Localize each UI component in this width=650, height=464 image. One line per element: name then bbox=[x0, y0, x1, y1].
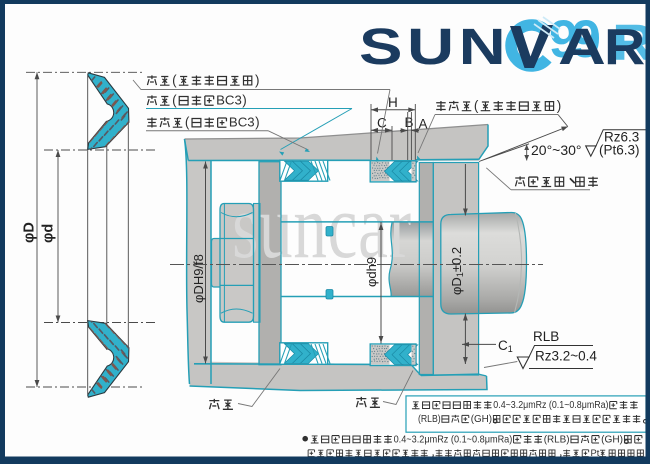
svg-text:φD1±0.2: φD1±0.2 bbox=[449, 247, 465, 295]
svg-text:A: A bbox=[419, 117, 428, 132]
svg-text:0.4~3.2μmRz (0.1~0.8μmRa): 0.4~3.2μmRz (0.1~0.8μmRa) bbox=[394, 434, 513, 445]
svg-text:(Pt6.3): (Pt6.3) bbox=[599, 143, 640, 158]
svg-text:0.4~3.2μmRz (0.1~0.8μmRa): 0.4~3.2μmRz (0.1~0.8μmRa) bbox=[493, 400, 608, 411]
svg-text:(: ( bbox=[185, 114, 190, 129]
svg-text:H: H bbox=[388, 95, 398, 110]
svg-text:(: ( bbox=[172, 92, 177, 107]
svg-text:): ) bbox=[242, 92, 247, 107]
svg-text:BC3: BC3 bbox=[216, 92, 242, 107]
svg-text:(GH): (GH) bbox=[601, 434, 623, 445]
svg-text:R: R bbox=[604, 19, 645, 76]
svg-text:φDH9/f8: φDH9/f8 bbox=[191, 254, 206, 303]
svg-text:Pt: Pt bbox=[591, 447, 600, 458]
svg-text:BC3: BC3 bbox=[229, 114, 255, 129]
svg-text:(RLB): (RLB) bbox=[418, 414, 441, 425]
svg-text:): ) bbox=[557, 98, 562, 113]
svg-text:B: B bbox=[405, 115, 414, 130]
svg-text:Rz3.2~0.4: Rz3.2~0.4 bbox=[535, 349, 597, 364]
svg-text:(: ( bbox=[172, 72, 177, 87]
svg-text:φdh9: φdh9 bbox=[364, 257, 379, 287]
svg-text:φD: φD bbox=[22, 222, 38, 243]
svg-text:A: A bbox=[558, 17, 606, 75]
svg-text:SUN: SUN bbox=[359, 19, 510, 76]
svg-text:): ) bbox=[255, 114, 260, 129]
svg-text:(GH): (GH) bbox=[471, 414, 492, 425]
svg-text:(RLB): (RLB) bbox=[544, 434, 570, 445]
svg-text:20°~30°: 20°~30° bbox=[531, 142, 582, 158]
svg-text:RLB: RLB bbox=[533, 329, 559, 344]
svg-text:φd: φd bbox=[41, 224, 57, 243]
svg-text:): ) bbox=[255, 72, 260, 87]
svg-text:(: ( bbox=[474, 98, 479, 113]
